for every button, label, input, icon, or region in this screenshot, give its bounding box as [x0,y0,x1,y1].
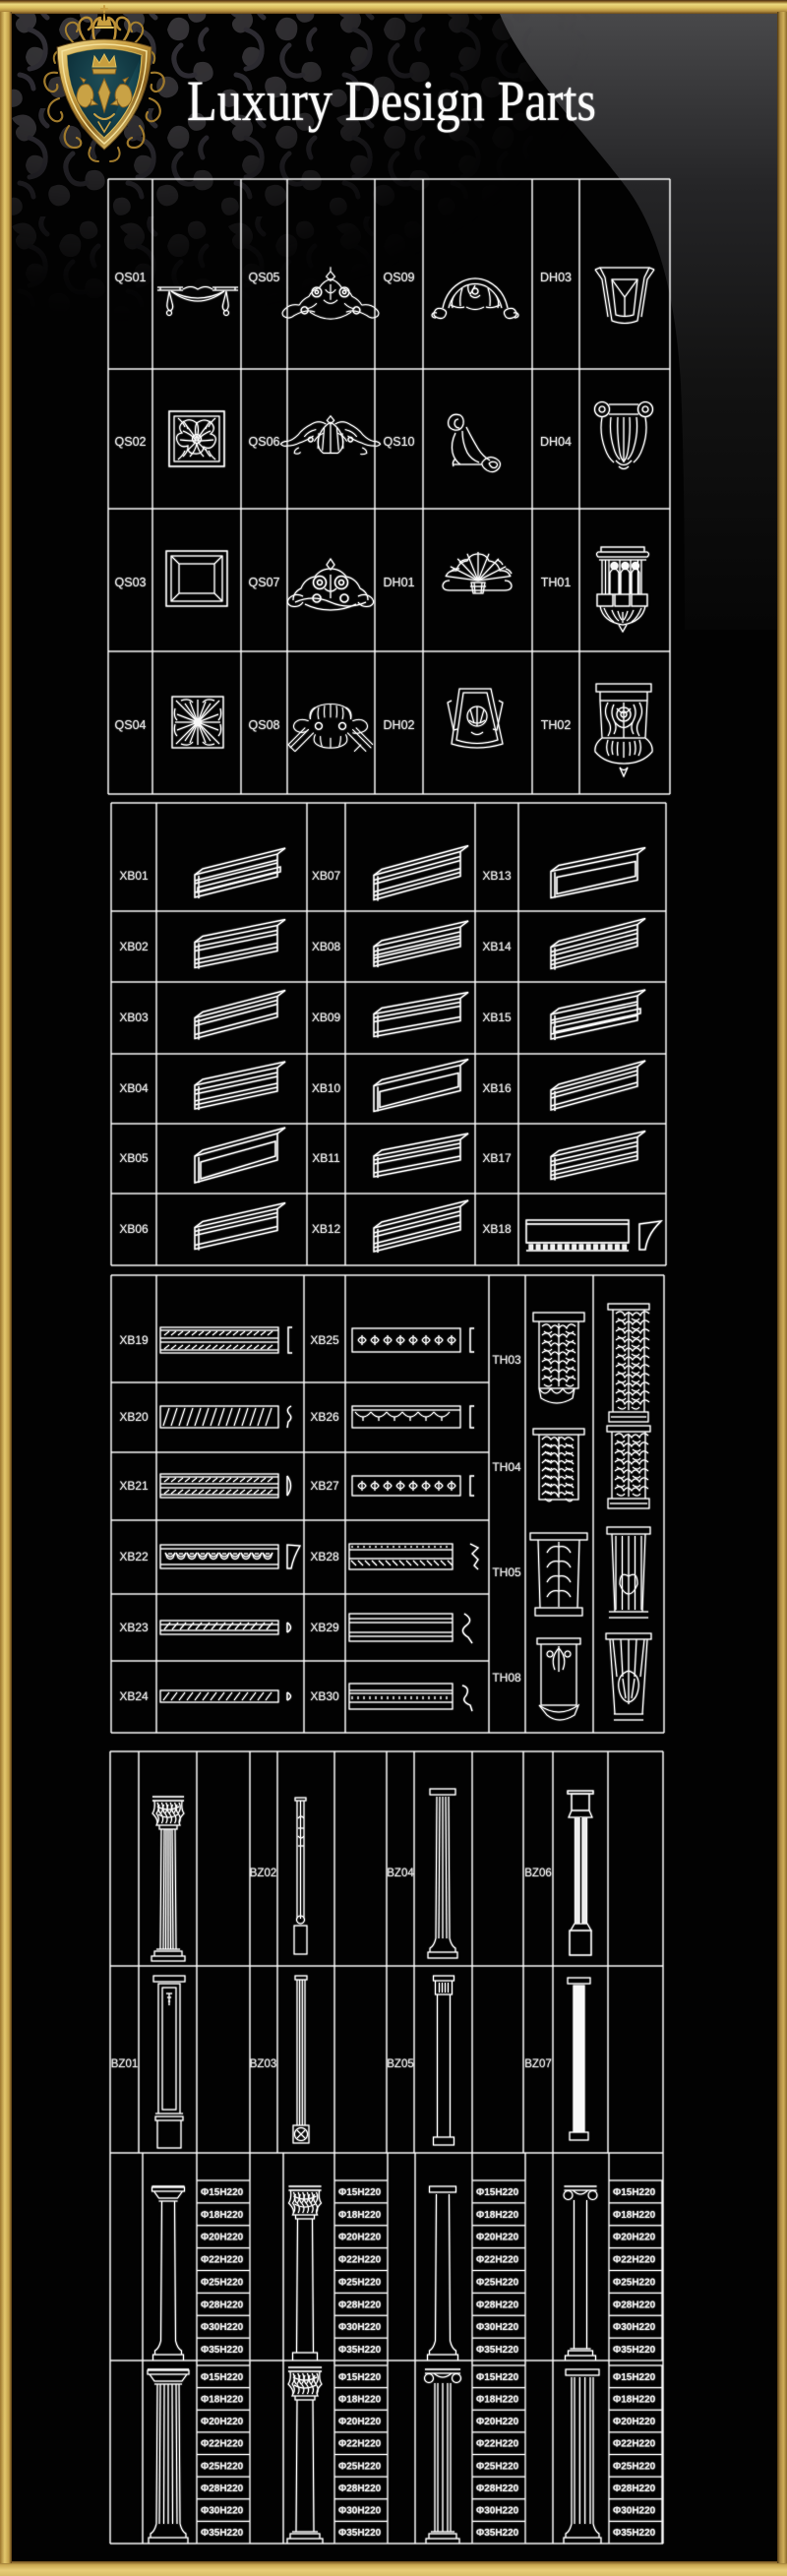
svg-text:Φ20H220: Φ20H220 [201,2233,244,2243]
svg-text:Luxury Design Parts: Luxury Design Parts [187,69,596,133]
svg-text:XB27: XB27 [310,1479,339,1493]
svg-text:Φ20H220: Φ20H220 [201,2417,244,2427]
svg-text:Φ35H220: Φ35H220 [476,2345,519,2356]
svg-text:Φ35H220: Φ35H220 [476,2528,519,2539]
svg-text:Φ30H220: Φ30H220 [613,2506,656,2517]
svg-text:Φ18H220: Φ18H220 [476,2210,519,2221]
svg-text:Φ22H220: Φ22H220 [613,2439,656,2450]
svg-text:Φ30H220: Φ30H220 [201,2506,244,2517]
svg-text:Φ18H220: Φ18H220 [613,2210,656,2221]
svg-text:Φ15H220: Φ15H220 [201,2187,244,2198]
svg-text:Φ15H220: Φ15H220 [476,2372,519,2383]
svg-text:BZ04: BZ04 [387,1868,414,1879]
svg-text:Φ30H220: Φ30H220 [613,2322,656,2333]
svg-text:XB07: XB07 [312,869,341,883]
svg-text:Φ28H220: Φ28H220 [476,2300,519,2310]
svg-text:Φ30H220: Φ30H220 [476,2322,519,2333]
svg-text:BZ01: BZ01 [111,2058,139,2070]
svg-text:Φ20H220: Φ20H220 [476,2417,519,2427]
svg-text:Φ25H220: Φ25H220 [476,2461,519,2472]
svg-text:QS06: QS06 [249,435,280,449]
svg-text:Φ35H220: Φ35H220 [201,2345,244,2356]
svg-text:QS05: QS05 [249,271,280,284]
svg-text:Φ25H220: Φ25H220 [338,2277,382,2288]
svg-text:XB12: XB12 [312,1222,341,1236]
svg-text:QS03: QS03 [115,576,147,589]
svg-text:Φ22H220: Φ22H220 [201,2255,244,2266]
svg-text:Φ20H220: Φ20H220 [338,2233,382,2243]
svg-text:QS07: QS07 [249,576,280,589]
svg-text:XB02: XB02 [119,940,149,953]
svg-text:Φ25H220: Φ25H220 [338,2461,382,2472]
svg-text:Φ35H220: Φ35H220 [338,2528,382,2539]
svg-text:XB23: XB23 [119,1621,149,1634]
svg-text:XB06: XB06 [119,1222,149,1236]
svg-text:XB16: XB16 [482,1081,512,1095]
svg-text:BZ05: BZ05 [387,2058,414,2070]
svg-text:Φ35H220: Φ35H220 [613,2528,656,2539]
svg-text:XB03: XB03 [119,1011,149,1024]
svg-text:Φ20H220: Φ20H220 [613,2233,656,2243]
svg-text:Φ18H220: Φ18H220 [201,2210,244,2221]
svg-text:QS01: QS01 [115,271,147,284]
svg-text:Φ18H220: Φ18H220 [338,2210,382,2221]
svg-text:XB25: XB25 [310,1333,339,1347]
svg-text:XB29: XB29 [310,1621,339,1634]
svg-text:TH02: TH02 [541,718,572,732]
svg-text:Φ18H220: Φ18H220 [476,2394,519,2405]
svg-text:DH04: DH04 [540,435,572,449]
svg-text:Φ15H220: Φ15H220 [613,2187,656,2198]
svg-text:Φ25H220: Φ25H220 [201,2277,244,2288]
svg-text:Φ22H220: Φ22H220 [338,2439,382,2450]
svg-text:XB26: XB26 [310,1410,339,1424]
svg-text:XB15: XB15 [482,1011,512,1024]
svg-text:Φ22H220: Φ22H220 [201,2439,244,2450]
svg-text:Φ28H220: Φ28H220 [201,2300,244,2310]
svg-text:DH03: DH03 [540,271,572,284]
svg-text:Φ22H220: Φ22H220 [476,2439,519,2450]
svg-text:TH04: TH04 [492,1460,521,1474]
svg-text:Φ28H220: Φ28H220 [338,2484,382,2494]
svg-text:DH01: DH01 [384,576,415,589]
svg-text:Φ25H220: Φ25H220 [476,2277,519,2288]
svg-text:XB14: XB14 [482,940,512,953]
svg-text:Φ18H220: Φ18H220 [613,2394,656,2405]
svg-text:XB17: XB17 [482,1151,512,1165]
svg-text:Φ30H220: Φ30H220 [338,2322,382,2333]
svg-text:Φ28H220: Φ28H220 [476,2484,519,2494]
svg-text:XB05: XB05 [119,1151,149,1165]
svg-text:XB24: XB24 [119,1689,149,1703]
svg-text:XB04: XB04 [119,1081,149,1095]
svg-text:BZ07: BZ07 [524,2058,552,2070]
svg-text:Φ25H220: Φ25H220 [613,2277,656,2288]
svg-text:XB30: XB30 [310,1689,339,1703]
svg-text:XB01: XB01 [119,869,149,883]
svg-text:QS04: QS04 [115,718,147,732]
svg-text:Φ25H220: Φ25H220 [613,2461,656,2472]
svg-text:Φ20H220: Φ20H220 [613,2417,656,2427]
svg-text:Φ28H220: Φ28H220 [338,2300,382,2310]
svg-text:Φ15H220: Φ15H220 [476,2187,519,2198]
svg-text:Φ15H220: Φ15H220 [201,2372,244,2383]
svg-text:Φ28H220: Φ28H220 [613,2484,656,2494]
svg-text:XB13: XB13 [482,869,512,883]
svg-text:TH03: TH03 [492,1353,521,1367]
svg-text:TH01: TH01 [541,576,572,589]
svg-text:Φ18H220: Φ18H220 [201,2394,244,2405]
svg-text:XB08: XB08 [312,940,341,953]
svg-text:XB19: XB19 [119,1333,149,1347]
svg-text:Φ20H220: Φ20H220 [338,2417,382,2427]
svg-text:Φ28H220: Φ28H220 [613,2300,656,2310]
svg-text:Φ22H220: Φ22H220 [613,2255,656,2266]
svg-text:Φ15H220: Φ15H220 [613,2372,656,2383]
svg-text:QS09: QS09 [384,271,415,284]
svg-text:Φ30H220: Φ30H220 [338,2506,382,2517]
svg-text:Φ15H220: Φ15H220 [338,2187,382,2198]
svg-text:DH02: DH02 [384,718,415,732]
svg-text:XB10: XB10 [312,1081,341,1095]
svg-text:Φ30H220: Φ30H220 [201,2322,244,2333]
svg-text:XB09: XB09 [312,1011,341,1024]
svg-text:Φ15H220: Φ15H220 [338,2372,382,2383]
svg-text:XB21: XB21 [119,1479,149,1493]
svg-text:TH05: TH05 [492,1565,521,1579]
svg-text:Φ28H220: Φ28H220 [201,2484,244,2494]
svg-text:BZ03: BZ03 [250,2058,277,2070]
svg-text:QS08: QS08 [249,718,280,732]
svg-text:Φ22H220: Φ22H220 [338,2255,382,2266]
svg-text:BZ02: BZ02 [250,1868,277,1879]
svg-text:XB20: XB20 [119,1410,149,1424]
svg-text:Φ20H220: Φ20H220 [476,2233,519,2243]
svg-text:Φ18H220: Φ18H220 [338,2394,382,2405]
svg-text:Φ25H220: Φ25H220 [201,2461,244,2472]
svg-text:Φ35H220: Φ35H220 [338,2345,382,2356]
svg-text:Φ30H220: Φ30H220 [476,2506,519,2517]
svg-text:BZ06: BZ06 [524,1868,552,1879]
svg-text:XB18: XB18 [482,1222,512,1236]
svg-text:Φ22H220: Φ22H220 [476,2255,519,2266]
svg-text:QS02: QS02 [115,435,147,449]
svg-text:QS10: QS10 [384,435,415,449]
svg-text:XB11: XB11 [312,1151,340,1165]
svg-text:Φ35H220: Φ35H220 [201,2528,244,2539]
svg-text:XB28: XB28 [310,1550,339,1564]
svg-text:XB22: XB22 [119,1550,149,1564]
svg-text:Φ35H220: Φ35H220 [613,2345,656,2356]
svg-text:TH08: TH08 [492,1671,521,1685]
